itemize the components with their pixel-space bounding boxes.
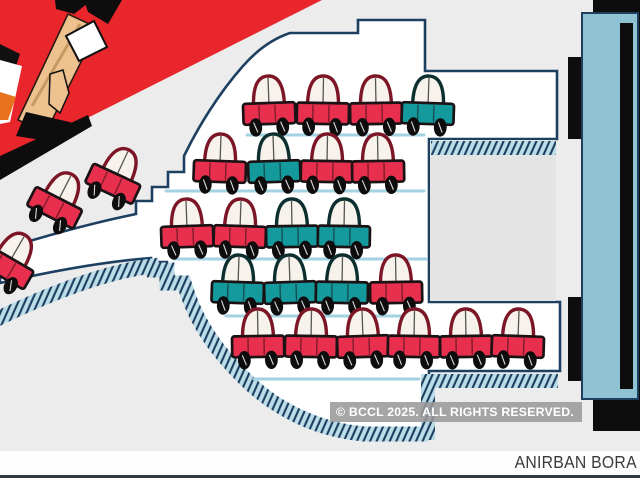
prong-recess	[430, 140, 556, 301]
socket	[568, 0, 640, 431]
artist-credit: ANIRBAN BORA	[515, 452, 637, 473]
socket-slot	[620, 23, 633, 389]
watermark: © BCCL 2025. ALL RIGHTS RESERVED.	[330, 402, 582, 422]
bottom-rule	[0, 475, 640, 478]
illustration: © BCCL 2025. ALL RIGHTS RESERVED. ANIRBA…	[0, 0, 640, 480]
